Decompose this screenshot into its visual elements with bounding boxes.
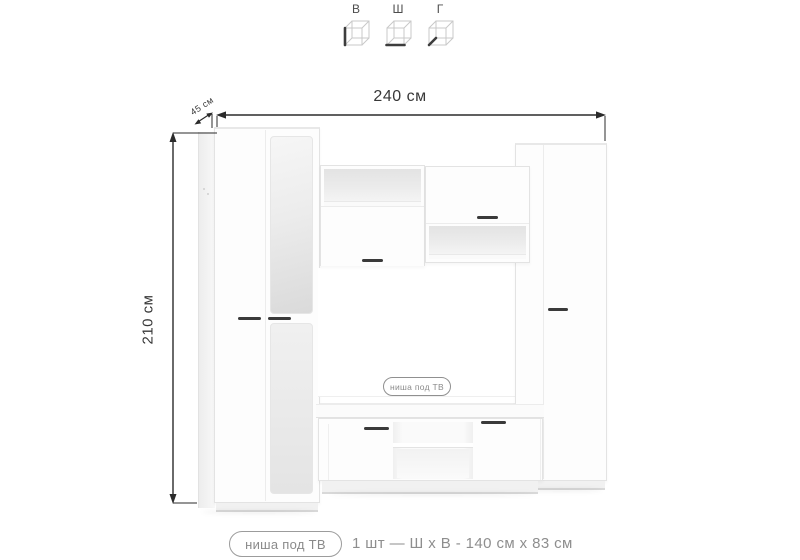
footer-niche-spec: 1 шт — Ш х В - 140 см х 83 см <box>352 535 573 552</box>
dimension-lines <box>0 0 800 560</box>
footer-niche-tag: ниша под ТВ <box>229 531 342 557</box>
height-dimension-label: 210 см <box>140 280 157 360</box>
furniture-dimension-diagram: В Ш Г <box>0 0 800 560</box>
width-dimension-label: 240 см <box>350 88 450 106</box>
tv-niche-tag: ниша под ТВ <box>383 377 451 396</box>
